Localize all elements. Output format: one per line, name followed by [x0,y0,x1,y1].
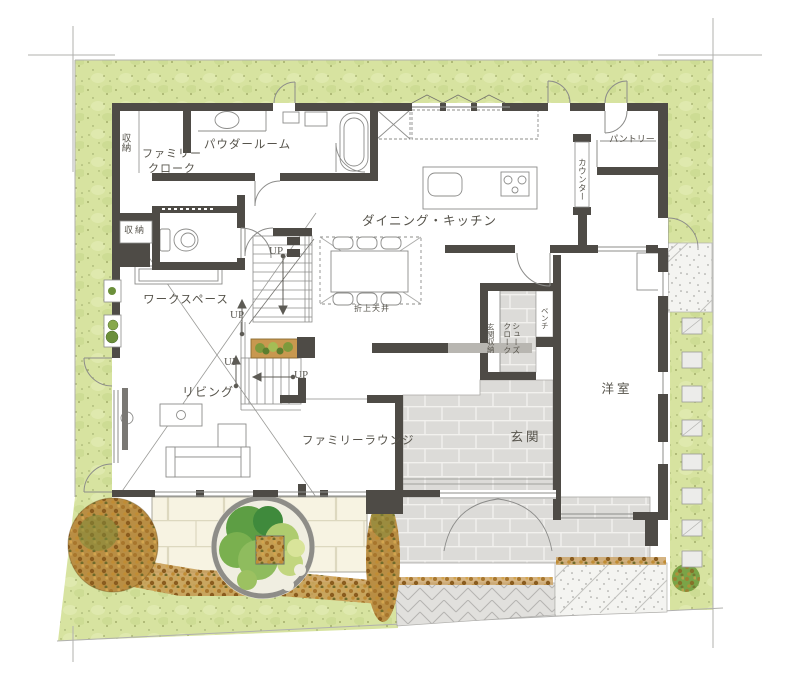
label-up-1: UP [269,244,283,259]
label-shoes-closet: シューズクローク [502,308,520,368]
label-dining-kitchen: ダイニング・キッチン [362,213,492,230]
shrub-column [366,498,400,622]
label-coffered-ceiling: 折上天井 [350,304,394,315]
label-up-4: UP [294,368,308,383]
entrance-porch [390,497,650,563]
label-family-cloak-line2: クローク [148,163,196,175]
stair-planter [251,339,298,358]
label-storage-wc: 収納 [118,224,152,236]
label-up-3: UP [224,355,238,370]
floor-plan: 収納 ファミリークローク パウダールーム パントリー カウンター ダイニング・キ… [0,0,800,674]
label-entrance: 玄関 [504,429,548,446]
label-entrance-storage: 玄関収納 [486,310,494,366]
floorplan-svg [0,0,800,674]
shrub-large [68,498,158,592]
approach [395,557,667,626]
label-powder-room: パウダールーム [200,138,295,154]
tree-planter [211,495,315,599]
label-shoes-closet-line2: クローク [502,308,511,368]
label-up-2: UP [230,308,244,323]
label-workspace: ワークスペース [136,293,236,309]
label-living: リビング [178,384,238,400]
label-western-room: 洋室 [594,381,640,398]
label-family-lounge: ファミリーラウンジ [302,434,412,450]
tv-board [122,388,128,450]
label-counter: カウンター [577,150,586,208]
label-pantry: パントリー [606,133,658,145]
label-shoes-closet-line1: シューズ [511,308,520,368]
shrub-small-right [672,564,700,592]
label-family-cloak-line1: ファミリー [142,148,202,160]
label-bench: ベンチ [540,297,548,339]
